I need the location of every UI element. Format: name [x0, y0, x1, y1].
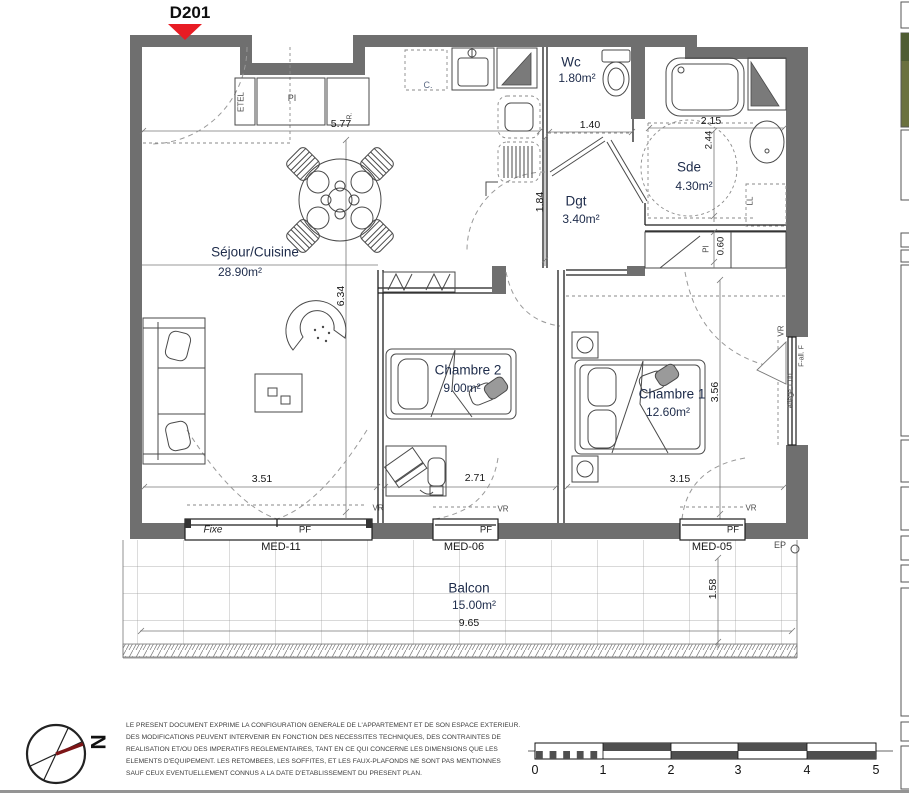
room-area-dgt: 3.40m² [562, 212, 599, 226]
rug [255, 374, 302, 412]
window3-pf-label: PF [727, 525, 739, 536]
room-area-wc: 1.80m² [558, 71, 595, 85]
window2-pf-label: PF [480, 525, 492, 536]
compass-rose [27, 725, 85, 783]
scale-bar [528, 743, 893, 759]
room-area-chambre1: 12.60m² [646, 405, 690, 419]
room-name-wc: Wc [561, 55, 581, 70]
pi-dgt-label: PI [702, 245, 711, 253]
room-name-balcon: Balcon [448, 581, 489, 596]
vr-label-med05: VR [745, 504, 756, 513]
dim-9-65: 9.65 [459, 617, 479, 629]
window1-code: MED-11 [261, 541, 301, 553]
etel-closet-label: ETEL [237, 92, 246, 112]
compass-north-letter: N [85, 734, 109, 749]
window2-code: MED-06 [444, 541, 484, 553]
kitchen-fixtures [405, 48, 540, 196]
room-name-sde: Sde [677, 160, 701, 175]
dim-3-51: 3.51 [252, 473, 272, 485]
pi-entry-label: PI [288, 93, 297, 103]
page-edge-fragments [901, 2, 909, 789]
floor-plan-page: { "plan": { "unit_label": "D201", "rooms… [0, 0, 909, 800]
dim-1-40: 1.40 [580, 119, 600, 131]
dim-2-71: 2.71 [465, 472, 485, 484]
vr-label-med06: VR [497, 505, 508, 514]
floor-plan-svg [0, 0, 909, 800]
room-area-sejour: 28.90m² [218, 265, 262, 279]
dim-2-15: 2.15 [701, 115, 721, 127]
scale-tick-5: 5 [873, 763, 880, 777]
c-tag-label: C. [424, 80, 433, 90]
ep-label: EP [774, 540, 786, 550]
room-area-chambre2: 9.00m² [443, 381, 480, 395]
door-swings [143, 47, 786, 519]
disclaimer-line: REALISATION ET/OU DES IMPERATIFS REGLEME… [126, 746, 498, 753]
disclaimer-line: ELEMENTS D'EQUIPEMENT. LES RETOMBEES, LE… [126, 758, 501, 765]
dim-2-44: 2.44 [704, 131, 715, 150]
footer-divider [0, 790, 909, 793]
wc-fixtures [602, 50, 630, 96]
room-name-dgt: Dgt [565, 194, 586, 209]
dim-6-34: 6.34 [335, 286, 347, 306]
sofa [143, 318, 205, 464]
entry-arrow-icon [168, 24, 202, 40]
armchair [286, 301, 346, 350]
scale-tick-4: 4 [804, 763, 811, 777]
dining-table [285, 146, 396, 255]
room-name-sejour: Séjour/Cuisine [211, 245, 299, 260]
dim-1-58: 1.58 [707, 579, 719, 599]
ll-label: LL [746, 197, 755, 206]
dim-0-60: 0.60 [716, 237, 727, 256]
vr-label-east-window: VR [777, 325, 786, 336]
scale-tick-0: 0 [532, 763, 539, 777]
dim-5-77: 5.77 [331, 118, 351, 130]
scale-tick-3: 3 [735, 763, 742, 777]
window3-code: MED-05 [692, 541, 732, 553]
fall-label: F-all. F [799, 345, 806, 367]
bathroom-fixtures [666, 58, 786, 226]
scale-tick-1: 1 [600, 763, 607, 777]
room-name-chambre1: Chambre 1 [639, 387, 706, 402]
dim-3-15: 3.15 [670, 473, 690, 485]
unit-label: D201 [170, 3, 211, 23]
window1-fixe-label: Fixe [204, 525, 223, 536]
outer-walls [130, 35, 808, 539]
disclaimer-line: DES MODIFICATIONS PEUVENT INTERVENIR EN … [126, 734, 501, 741]
room-name-chambre2: Chambre 2 [435, 363, 502, 378]
room-area-sde: 4.30m² [675, 179, 712, 193]
allege-label: Allège 1.00 [788, 373, 795, 408]
window1-pf-label: PF [299, 525, 311, 536]
room-area-balcon: 15.00m² [452, 598, 496, 612]
scale-tick-2: 2 [668, 763, 675, 777]
disclaimer-line: SAUF CEUX EVENTUELLEMENT CONNUS A LA DAT… [126, 770, 422, 777]
disclaimer-line: LE PRESENT DOCUMENT EXPRIME LA CONFIGURA… [126, 722, 520, 729]
dim-1-84: 1.84 [534, 192, 546, 212]
vr-label-med11: VR [372, 504, 383, 513]
dim-3-56: 3.56 [709, 382, 721, 402]
